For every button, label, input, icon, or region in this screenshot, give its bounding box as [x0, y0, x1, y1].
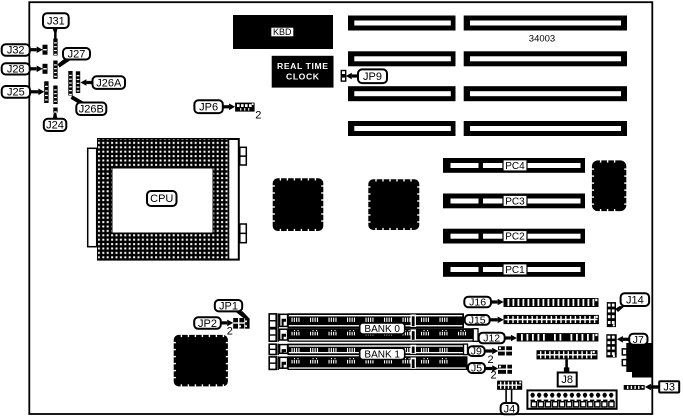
svg-text:PC3: PC3 [505, 197, 525, 208]
svg-text:JP6: JP6 [199, 101, 218, 113]
svg-text:J15: J15 [469, 314, 486, 326]
svg-text:CPU: CPU [150, 193, 173, 205]
svg-text:J8: J8 [561, 374, 573, 386]
svg-text:J4: J4 [504, 403, 516, 415]
svg-text:J32: J32 [7, 45, 25, 57]
svg-text:J26A: J26A [96, 77, 122, 89]
svg-text:J5: J5 [471, 363, 482, 375]
svg-text:J25: J25 [7, 87, 25, 99]
svg-text:JP9: JP9 [363, 71, 382, 83]
svg-text:J28: J28 [7, 64, 25, 76]
svg-text:J3: J3 [663, 382, 675, 394]
svg-text:J31: J31 [47, 15, 65, 27]
svg-text:J9: J9 [471, 346, 482, 358]
svg-text:JP1: JP1 [219, 300, 238, 312]
svg-text:BANK 0: BANK 0 [364, 324, 400, 335]
svg-text:J12: J12 [483, 333, 500, 345]
svg-text:PC4: PC4 [505, 161, 525, 172]
svg-text:PC1: PC1 [505, 265, 525, 276]
svg-text:BANK 1: BANK 1 [364, 349, 400, 360]
svg-text:2: 2 [227, 325, 233, 337]
svg-text:2: 2 [491, 370, 497, 382]
svg-text:2: 2 [255, 109, 261, 121]
svg-text:J24: J24 [46, 120, 64, 132]
svg-text:34003: 34003 [529, 34, 555, 45]
svg-text:REAL TIME: REAL TIME [277, 61, 329, 71]
svg-text:CLOCK: CLOCK [286, 72, 320, 82]
svg-text:J16: J16 [469, 297, 486, 309]
svg-text:PC2: PC2 [505, 232, 525, 243]
svg-text:J7: J7 [633, 334, 644, 346]
svg-text:J26B: J26B [79, 103, 104, 115]
svg-text:JP2: JP2 [198, 318, 217, 330]
svg-text:KBD: KBD [273, 27, 292, 37]
svg-text:2: 2 [488, 354, 494, 366]
svg-text:J27: J27 [68, 48, 86, 60]
svg-text:J14: J14 [626, 294, 644, 306]
